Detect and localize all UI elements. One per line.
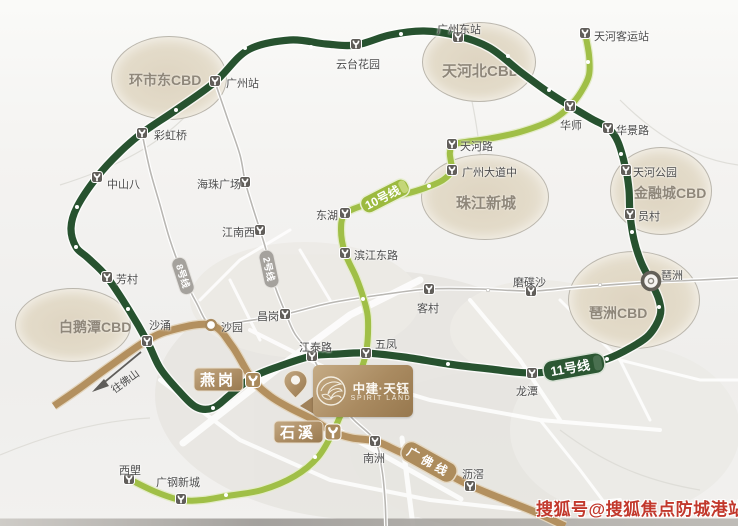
svg-text:石溪: 石溪	[279, 424, 316, 442]
svg-text:燕岗: 燕岗	[200, 371, 236, 389]
svg-text:往佛山: 往佛山	[109, 367, 142, 396]
